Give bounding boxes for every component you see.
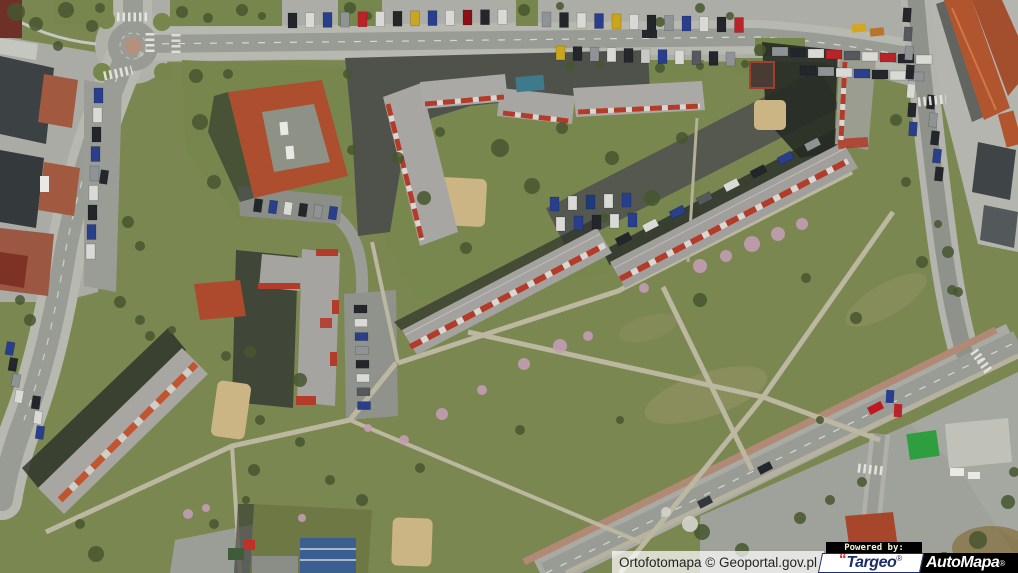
parked-car <box>411 11 420 26</box>
trees-dark <box>145 331 155 341</box>
parked-car <box>872 70 888 79</box>
parked-car <box>909 122 918 137</box>
building-hut-left <box>0 252 28 288</box>
parked-car <box>836 68 852 77</box>
parked-car <box>905 46 914 61</box>
parked-car <box>665 16 674 31</box>
trees-dark <box>676 132 688 144</box>
trees-dark <box>415 463 425 473</box>
trees-dark <box>122 216 134 228</box>
plaza-brick-1 <box>38 74 78 128</box>
trees-dark <box>58 2 74 18</box>
trees-dark <box>518 4 530 16</box>
trees-dark <box>644 190 660 206</box>
shed-b3-top <box>750 62 774 88</box>
trees-dark <box>726 12 734 20</box>
parked-car <box>35 426 45 440</box>
trees-dark <box>86 20 98 32</box>
trees-dark <box>616 416 624 424</box>
parked-car <box>376 12 385 27</box>
trees-blossom <box>183 509 193 519</box>
trees-dark <box>295 437 305 447</box>
parked-car <box>428 11 437 26</box>
trees-dark <box>1001 495 1015 509</box>
parked-car <box>542 12 551 27</box>
trees-dark <box>435 127 445 137</box>
parked-car <box>607 48 616 62</box>
b9-solar-panels <box>300 538 356 573</box>
trees-dark <box>242 496 250 504</box>
b4-red-6 <box>320 318 332 328</box>
parked-car <box>90 166 99 181</box>
trees-dark <box>850 312 862 324</box>
parked-car <box>854 69 870 78</box>
trees-dark <box>223 69 233 79</box>
car-side-blue <box>886 390 895 403</box>
parked-car <box>818 67 834 76</box>
parked-car <box>907 84 916 99</box>
trees-blossom <box>436 408 448 420</box>
roundabout-green-4 <box>154 63 172 81</box>
parked-car <box>288 13 297 28</box>
parked-car <box>880 53 896 62</box>
parked-car <box>628 213 637 227</box>
parked-car <box>354 305 367 313</box>
trees-dark <box>176 6 188 18</box>
parked-car <box>709 51 718 65</box>
parked-car <box>906 65 915 80</box>
parked-car <box>903 8 912 23</box>
trees-dark <box>524 178 540 194</box>
trees-dark <box>203 13 213 23</box>
trees-blossom <box>583 331 593 341</box>
parked-car <box>928 113 937 128</box>
parked-car <box>355 319 368 327</box>
parked-car <box>91 147 100 162</box>
trees-blossom <box>298 514 306 522</box>
trees-dark <box>135 241 145 251</box>
car-yellow-2 <box>870 27 885 36</box>
parked-car <box>675 50 684 64</box>
parked-car <box>692 51 701 65</box>
trees-dark <box>189 69 203 83</box>
parked-car <box>592 215 601 229</box>
trees-dark <box>693 293 707 307</box>
trees-dark <box>491 139 509 157</box>
b4-red-4 <box>330 352 337 366</box>
parked-car <box>355 333 368 341</box>
kiosk-green <box>906 430 939 460</box>
truck-white-2 <box>968 472 980 479</box>
parked-car <box>298 203 308 217</box>
parked-car <box>481 10 490 25</box>
parked-car <box>283 202 293 216</box>
parked-car <box>934 167 943 182</box>
trees-blossom <box>639 283 649 293</box>
truck-white-1 <box>950 468 964 476</box>
parked-car <box>700 17 709 32</box>
parked-car <box>8 357 18 371</box>
trees-dark <box>754 44 766 56</box>
trees-dark <box>890 114 902 126</box>
parked-car <box>808 49 824 58</box>
building-red-house <box>194 280 246 320</box>
parked-car <box>586 195 595 209</box>
trees-dark <box>95 3 105 13</box>
building-dark-right-1 <box>972 142 1016 200</box>
trees-dark <box>135 315 145 325</box>
parked-car <box>568 196 577 210</box>
parked-car <box>800 66 816 75</box>
trees-blossom <box>771 227 785 241</box>
trees-dark <box>248 464 260 476</box>
parked-car <box>904 27 913 42</box>
trees-dark <box>695 3 705 13</box>
building-gray-br <box>945 418 1012 468</box>
parked-car <box>890 71 906 80</box>
b4-red-2 <box>296 396 316 405</box>
trees-dark <box>207 175 221 189</box>
trees-dark <box>565 61 575 71</box>
trees-dark <box>953 287 963 297</box>
b4-red-1 <box>316 249 338 256</box>
parked-car <box>357 374 370 382</box>
trees-white-blossom <box>682 516 698 532</box>
trees-white-blossom <box>661 507 671 517</box>
car-on-top-street <box>642 30 657 38</box>
parked-car <box>341 12 350 27</box>
b4-red-3 <box>332 300 339 314</box>
parked-car <box>916 55 932 64</box>
trees-dark <box>857 477 867 487</box>
parked-car <box>574 216 583 230</box>
targeo-registered-mark: ® <box>897 554 903 563</box>
trees-dark <box>934 220 942 228</box>
trees-dark <box>75 519 85 529</box>
parked-car <box>612 14 621 29</box>
parked-car <box>89 186 98 201</box>
trees-dark <box>655 17 665 27</box>
parked-car <box>908 103 917 118</box>
trees-dark <box>460 242 472 254</box>
parked-car <box>930 131 939 146</box>
attribution-text: Ortofotomapa © Geoportal.gov.pl <box>619 555 817 570</box>
trees-dark <box>356 494 368 506</box>
trees-dark <box>969 531 987 549</box>
parked-car <box>323 12 332 27</box>
parked-car <box>550 197 559 211</box>
trees-dark <box>343 69 353 79</box>
trees-dark <box>801 273 811 283</box>
parked-car <box>641 49 650 63</box>
parked-car <box>717 17 726 32</box>
car-yellow-1 <box>852 23 867 32</box>
trees-dark <box>417 191 431 205</box>
b9-gray-part <box>252 556 298 573</box>
b9-dumpster-red <box>243 540 255 550</box>
parked-car <box>624 48 633 62</box>
trees-dark <box>942 246 954 258</box>
automapa-logo[interactable]: AutoMapa® <box>918 553 1018 573</box>
roundabout-green-2 <box>153 13 171 31</box>
trees-dark <box>53 41 63 51</box>
sand-playground-b5 <box>210 380 251 440</box>
trees-blossom <box>553 339 567 353</box>
parked-car <box>826 50 842 59</box>
parked-car <box>658 50 667 64</box>
trees-dark <box>15 295 25 305</box>
apron-b4-parking <box>344 290 398 420</box>
parked-car <box>33 411 43 425</box>
roundabout-green-3 <box>93 63 111 81</box>
parked-car <box>358 12 367 27</box>
parked-car <box>86 244 95 259</box>
targeo-logo-text: Targeo <box>847 554 897 572</box>
dirt-field-2 <box>838 263 934 337</box>
parked-car <box>356 360 369 368</box>
parked-car <box>590 47 599 61</box>
parked-car <box>313 205 323 219</box>
trees-dark <box>114 296 126 308</box>
parked-car <box>463 10 472 25</box>
van-white-left <box>40 176 49 192</box>
b9-shed-green <box>228 548 244 560</box>
trees-dark <box>221 351 231 361</box>
trees-blossom <box>693 259 707 273</box>
parked-car <box>862 52 878 61</box>
parked-car <box>93 108 102 123</box>
parked-car <box>94 88 103 103</box>
parked-car <box>393 11 402 26</box>
trees-dark <box>244 346 256 358</box>
b4-red-5 <box>258 283 300 289</box>
parked-car <box>31 396 41 410</box>
trees-dark <box>29 17 43 31</box>
dirt-field-3 <box>616 309 680 348</box>
map-viewport[interactable]: Ortofotomapa © Geoportal.gov.pl Powered … <box>0 0 1018 573</box>
trees-dark <box>901 177 911 187</box>
automapa-logo-text: AutoMapa <box>926 554 999 572</box>
trees-dark <box>325 475 335 485</box>
parked-car <box>560 13 569 28</box>
trees-dark <box>515 425 525 435</box>
parked-car <box>88 205 97 220</box>
trees-blossom <box>518 358 530 370</box>
parked-car <box>595 14 604 29</box>
parked-car <box>647 15 656 30</box>
trees-dark <box>258 12 266 20</box>
shed-blue-courtyard <box>515 75 544 92</box>
trees-dark <box>655 63 665 73</box>
parked-car <box>556 217 565 231</box>
parked-car <box>735 18 744 33</box>
trees-dark <box>7 3 25 21</box>
sand-playground-b9 <box>391 517 433 566</box>
trees-dark <box>816 416 824 424</box>
parked-car <box>622 193 631 207</box>
car-side-red <box>894 404 903 417</box>
automapa-registered-mark: ® <box>999 559 1005 568</box>
trees-blossom <box>744 236 760 252</box>
parked-car <box>682 16 691 31</box>
trees-blossom <box>364 424 372 432</box>
parked-car <box>772 47 788 56</box>
trees-dark <box>192 114 208 130</box>
trees-dark <box>741 60 749 68</box>
parked-car <box>556 46 565 60</box>
parked-car <box>932 149 941 164</box>
trees-dark <box>255 415 265 425</box>
roundabout-island <box>125 38 142 55</box>
parked-car <box>446 10 455 25</box>
map-canvas[interactable] <box>0 0 1018 573</box>
trees-dark <box>293 373 307 387</box>
parked-car <box>358 402 371 410</box>
map-attribution-bar: Ortofotomapa © Geoportal.gov.pl <box>612 551 824 573</box>
trees-dark <box>88 546 104 562</box>
parked-car <box>610 214 619 228</box>
parked-car <box>5 341 15 355</box>
sand-playground-b3 <box>754 100 786 130</box>
parked-car <box>92 127 101 142</box>
parked-car <box>790 48 806 57</box>
trees-blossom <box>720 250 732 262</box>
parked-car <box>328 206 338 220</box>
targeo-quote-icon: “ <box>839 555 847 565</box>
trees-dark <box>347 145 357 155</box>
trees-dark <box>556 2 564 10</box>
parked-car <box>306 13 315 28</box>
parked-car <box>357 388 370 396</box>
trees-dark <box>794 512 806 524</box>
trees-dark <box>916 256 928 268</box>
parked-car <box>630 15 639 30</box>
targeo-logo[interactable]: “Targeo® <box>818 553 924 573</box>
parked-car <box>577 13 586 28</box>
parked-car <box>604 194 613 208</box>
parked-car <box>844 51 860 60</box>
trees-dark <box>209 519 219 529</box>
parked-car <box>253 199 263 213</box>
trees-dark <box>605 151 619 165</box>
car-courtyard-white-1 <box>279 122 288 136</box>
trees-blossom <box>477 385 487 395</box>
parked-car <box>87 225 96 240</box>
trees-dark <box>556 122 568 134</box>
trees-blossom <box>796 218 808 230</box>
parked-car <box>573 47 582 61</box>
car-courtyard-white-2 <box>285 146 294 160</box>
trees-dark <box>392 152 404 164</box>
parked-car <box>268 200 278 214</box>
parked-car <box>498 9 507 24</box>
trees-dark <box>825 495 835 505</box>
trees-dark <box>236 4 248 16</box>
trees-dark <box>24 314 36 326</box>
parked-car <box>356 346 369 354</box>
trees-dark <box>168 326 176 334</box>
trees-blossom <box>399 435 409 445</box>
parked-car <box>726 52 735 66</box>
trees-blossom <box>202 504 210 512</box>
